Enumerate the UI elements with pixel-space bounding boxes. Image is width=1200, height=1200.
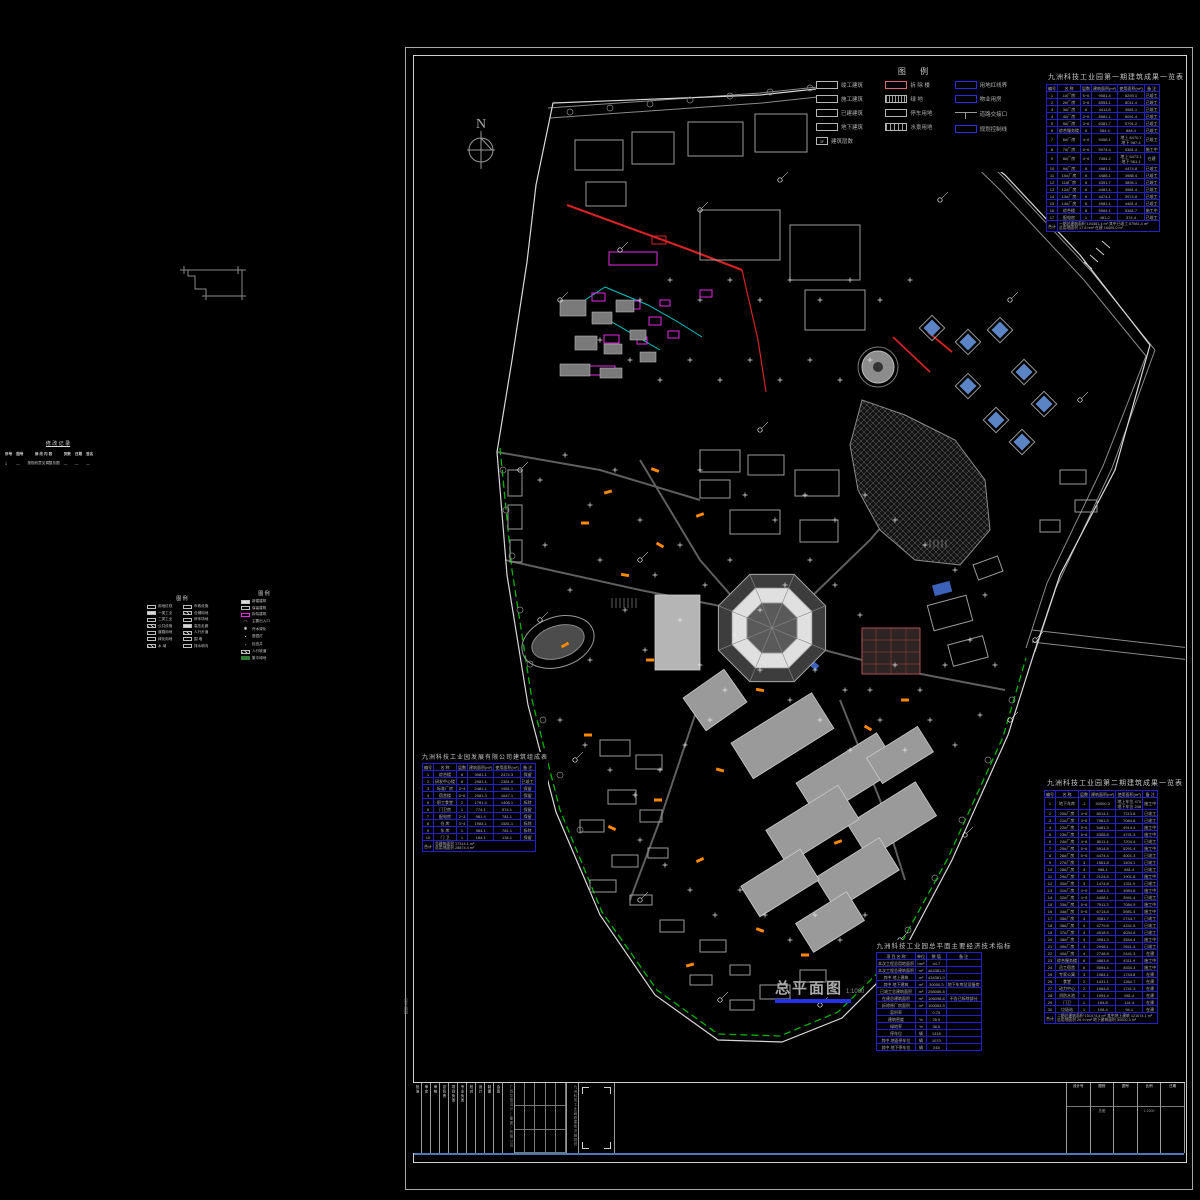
table-row [4,469,94,471]
table-cell: 已竣工 [1143,943,1158,950]
table-cell [946,974,981,981]
column-header: 建筑面积(m²) [468,764,494,771]
table-cell: 施工中 [1143,873,1158,880]
table-cell: 27 [1045,985,1056,992]
table-cell: 2~3 [457,813,468,820]
table-cell: 5974.4 [1092,146,1118,153]
table-row: 2139#厂房42948.12611.4已竣工 [1045,943,1158,950]
table-cell: 574.1 [494,806,520,813]
swatch-floor-count: 3F [816,137,828,145]
table-cell: 已竣工 [1143,915,1158,922]
table-cell: 7911.3 [1090,901,1116,908]
table-cell: 248 [927,1044,947,1051]
table-cell [26,469,60,471]
table-cell: m² [916,974,927,981]
table-cell: 1984.1 [468,820,494,827]
legend-label: 道路用地 [158,630,181,635]
table-cell: 4241.5 [1116,922,1143,929]
table-cell: 17 [1047,214,1058,221]
table-cell: 1 [1079,1006,1090,1013]
table-cell: 在建 [1143,985,1158,992]
table-cell: 1984.8 [1090,985,1116,992]
legend-label: 人行坡道 [252,649,266,654]
table-cell: 3974.8 [1118,193,1144,200]
table-cell: 已竣工 [1144,172,1159,179]
table-cell: 1094.4 [1090,992,1116,999]
phase2-table-grid: 编号名 称层数建筑面积(m²)使用面积(m²)备 注1地下车库-130000.3… [1044,790,1186,1024]
legend-swatch [183,618,192,622]
table-cell: 已竣工 [1143,810,1158,817]
table-row: 98#厂房4~67454.2地上 6473.1 地下 981.1在建 [1047,153,1160,165]
table-cell: 在建 [1143,978,1158,985]
table-row: 绿地率%38.5 [877,1023,982,1030]
table-cell: 7981.9 [1090,817,1116,824]
legend-swatch [241,600,250,604]
table-cell: 5~6 [1079,845,1090,852]
column-header: 名 称 [1056,791,1079,798]
table-row: 422#厂房5~65481.34914.4施工中 [1045,824,1158,831]
table-row: 在建总建筑面积m²106098.8不含已拆除部分 [877,995,982,1002]
table-row: 27动力中心21984.81741.3在建 [1045,985,1158,992]
table-row: 1514#厂房64981.14481.4已竣工 [1047,200,1160,207]
table-cell: 14 [1045,894,1056,901]
titleblock: 批准审定审核总负责项目负责专业负责校对设计制图会签 广西华蓝设计(集团)有限公司… [413,1082,1185,1153]
table-row: 停车位辆1318 [877,1030,982,1037]
table-row: 容积率0.79 [877,1009,982,1016]
column-header: 备 注 [1144,85,1159,92]
table-row: 1312#厂房64481.13981.4已竣工 [1047,186,1160,193]
table-cell: 33#厂房 [1056,901,1079,908]
column-header: 项 目 名 称 [877,953,916,960]
table-cell: 已竣工 [1144,120,1159,127]
table-cell: 其中 地下停车位 [877,1044,916,1051]
titleblock-label: 会签 [494,1083,503,1153]
table-cell: 7084.8 [1116,817,1143,824]
table-row: 1331#厂房4~54481.33984.8施工中 [1045,887,1158,894]
titleblock-field: 图别总图 [1091,1083,1115,1153]
table-cell: 保留 [520,771,535,778]
table-cell: 38#厂房 [1056,936,1079,943]
table-cell: 4~5 [1079,894,1090,901]
table-cell: 1404.1 [1116,859,1143,866]
table-cell: 4488.1 [1092,172,1118,179]
table-cell: 100063.9 [927,1002,947,1009]
table: 编号名 称层数建筑面积(m²)使用面积(m²)备 注11#厂房5~69081.4… [1046,84,1160,232]
table-cell: 保留 [520,785,535,792]
table-cell: 23 [1045,957,1056,964]
table-cell: 774.1 [468,806,494,813]
table-cell: 4914.4 [1116,824,1143,831]
table-cell: 地下车库及设备房 [946,981,981,988]
table-cell: 3 [1045,817,1056,824]
main-legend-title: 图 例 [816,66,1016,77]
table-cell: 已竣工 [1144,106,1159,113]
table-cell: 3#厂房 [1058,106,1081,113]
table-cell: 29 [1045,999,1056,1006]
table-cell: 3981.3 [1090,936,1116,943]
legend-swatch [147,618,156,622]
table-footer: 合计总建筑面积 17314.1 m² 总用地面积 28874.4 m² [423,841,536,852]
table-cell: 宿舍楼 [434,792,457,799]
table-cell: 6 [1081,179,1092,186]
titleblock-label: 审核 [431,1083,440,1153]
phase1-table: 九洲科技工业园第一期建筑成果一览表 编号名 称层数建筑面积(m²)使用面积(m²… [1046,72,1186,232]
table-cell: 5~6 [1079,908,1090,915]
table-cell: 9 [1045,859,1056,866]
table-cell: 26#厂房 [1056,852,1079,859]
swatch-green-space [885,95,907,103]
table-cell: 施工中 [1143,936,1158,943]
table-cell: 15 [1047,200,1058,207]
legend-swatch: ◠ [241,619,250,625]
table-cell: 25#厂房 [1056,845,1079,852]
table-cell: 1#厂房 [1058,92,1081,99]
swatch-control-line [955,125,977,133]
table-cell [946,1044,981,1051]
legend-label: 一类工业 [158,611,181,616]
table-cell: 981.4 [468,813,494,820]
table-cell: 已竣工 [1143,852,1158,859]
table: 编号名 称层数建筑面积(m²)使用面积(m²)备 注1综合楼63081.1247… [422,763,536,852]
table-cell [4,469,13,471]
table-cell: 12 [1047,179,1058,186]
table-cell: m² [916,1002,927,1009]
table-cell: 4981.1 [1092,165,1118,172]
table-cell: 4791.3 [1116,831,1143,838]
table-cell: 施工中 [1143,845,1158,852]
table-cell: 7 [1047,134,1058,146]
table-cell: 门卫 [1056,999,1079,1006]
table-row: 1230#厂房31474.81311.9已竣工 [1045,880,1158,887]
table-cell: 4481.3 [1090,887,1116,894]
table-cell: 15 [1045,901,1056,908]
table-row: 44#厂房3~68981.18091.4已竣工 [1047,113,1160,120]
table-cell: 3984.8 [1116,887,1143,894]
titleblock-company: 广西华蓝设计(集团)有限公司 [503,1083,515,1153]
titleblock-label: 总负责 [440,1083,449,1153]
legend-item: 用地红线市政设施 [147,604,217,609]
table-cell: 1741.3 [1116,985,1143,992]
table-cell: 3081.1 [468,771,494,778]
table-cell: 25.9 [927,1016,947,1023]
table-cell: 35#厂房 [1056,915,1079,922]
table-row: 1211#厂房64391.73894.1已竣工 [1047,179,1160,186]
table-cell: 8 [457,778,468,785]
column-header: 日期 [74,451,83,458]
column-header: 备 注 [520,764,535,771]
table-cell: 1318 [927,1030,947,1037]
table-cell: 1984.1 [1090,971,1116,978]
table-cell: 5~6 [1079,824,1090,831]
table-cell: 0.79 [927,1009,947,1016]
table-cell: % [916,1016,927,1023]
table-cell: 1 [1079,992,1090,999]
table-cell: 37#厂房 [1056,929,1079,936]
table-row: 本次工程总用地面积hm²44.7 [877,960,982,967]
table-cell: 已竣工 [1143,817,1158,824]
table-cell: 已竣工 [1144,200,1159,207]
legend-item: 拆除建筑 [241,612,287,617]
table-cell: 3 [1047,106,1058,113]
table-cell [63,469,72,471]
legend-swatch: • [241,634,250,640]
table-cell: 3081.7 [1090,915,1116,922]
table-cell: 5~6 [1081,146,1092,153]
table-cell: 2#厂房 [1058,99,1081,106]
table-cell: 24 [1045,964,1056,971]
table-cell: 29#厂房 [1056,873,1079,880]
table-cell: 9458.1 [1092,134,1118,146]
indicators-table-title: 九洲科技工业园总平面主要经济技术指标 [876,940,1012,950]
table-cell: 4 [1079,929,1090,936]
table-row: 拆除原厂房面积m²100063.9 [877,1002,982,1009]
table-cell: 7213.8 [1116,810,1143,817]
table-cell: 施工中 [1144,207,1159,214]
table-cell: 已竣工 [1143,859,1158,866]
table-cell: 拆除 [520,799,535,806]
table-row: 523#厂房5~65308.84791.3施工中 [1045,831,1158,838]
table-cell: 4034.8 [1116,929,1143,936]
legend-label: 主要出入口 [252,619,270,624]
table-cell: 已竣工 [1144,127,1159,134]
table-cell: 综合楼 [434,771,457,778]
table-cell: 已竣工 [1143,922,1158,929]
titleblock-label: 校对 [467,1083,476,1153]
table-cell: 20 [1045,936,1056,943]
table-cell: 建筑密度 [877,1016,916,1023]
table-row: 2研发中心楼82981.12381.9已竣工 [423,778,536,785]
table-cell: 1 [1081,214,1092,221]
table-cell: 1474.8 [1090,880,1116,887]
legend-item: ◠主要出入口 [241,619,287,625]
legend-label: 围 墙 [194,637,217,642]
table-row: 其中 地上建筑m²434381.0 [877,974,982,981]
land-use-legend-title: 图 例 [147,595,217,602]
table-cell [916,1009,927,1016]
column-header: 层数 [457,764,468,771]
table-cell: 8011.4 [1118,99,1144,106]
table-cell: 32#厂房 [1056,894,1079,901]
titleblock-field: 日期 [1161,1083,1185,1153]
table-cell: 8981.1 [1092,113,1118,120]
table-row: 7配电房2~3981.4781.1保留 [423,813,536,820]
table-cell: 动力中心 [1056,985,1079,992]
table-row: 2240#厂房42748.82441.3在建 [1045,950,1158,957]
table-cell: 3 [1079,866,1090,873]
land-use-legend: 图 例 用地红线市政设施一类工业仓储用地二类工业停车场地公共设施高压走廊道路用地… [147,595,217,650]
table-cell: 4474.1 [1092,193,1118,200]
table-cell: 2081.3 [468,792,494,799]
titleblock-stamp-box [579,1083,615,1153]
table-row: 1432#厂房4~54408.13941.4已竣工 [1045,894,1158,901]
table-cell: 5~6 [1081,92,1092,99]
table-cell: 3941.4 [1116,894,1143,901]
svg-text:N: N [476,117,486,132]
column-header: 数 值 [927,953,947,960]
table-cell: 其中 地面停车位 [877,1037,916,1044]
table-cell: 5~6 [1079,852,1090,859]
table-cell: 3981.4 [1118,186,1144,193]
swatch-existing-building [816,109,838,117]
table-cell: 门 卫 [434,834,457,841]
phase1-table-title: 九洲科技工业园第一期建筑成果一览表 [1046,72,1186,82]
table-cell: 施工中 [1143,887,1158,894]
table-cell: — [74,460,83,467]
legend-swatch [147,637,156,641]
table-cell: 4391.7 [1092,179,1118,186]
column-header: 建筑面积(m²) [1092,85,1118,92]
table-cell: 1 [423,771,434,778]
table-cell: 1581.1 [494,820,520,827]
table-cell: 2948.1 [1090,943,1116,950]
table-cell: 4001.3 [1116,852,1143,859]
table-cell: 1 [1045,798,1056,810]
table-cell: 2611.4 [1116,943,1143,950]
table-row: 1地下车库-130000.3地上车位 470 地下车位 248施工中 [1045,798,1158,810]
titleblock-blue-rule [414,1153,1184,1155]
table-cell: 4#厂房 [1058,113,1081,120]
legend-label: 停车场地 [194,617,217,622]
table-cell: 16 [1045,908,1056,915]
table-cell: 在建 [1143,999,1158,1006]
table-cell: 职工食堂 [434,799,457,806]
table-cell: 21#厂房 [1056,817,1079,824]
table-cell: 综合服务楼 [1056,957,1079,964]
table-cell: 食堂 [1056,978,1079,985]
table-cell: 22#厂房 [1056,824,1079,831]
table-row: 建筑密度%25.9 [877,1016,982,1023]
table-cell: 374.4 [1118,214,1144,221]
table-cell: 仓 库 [434,820,457,827]
legend-swatch [241,613,250,617]
legend-label: 用地红线 [158,604,181,609]
table-row: 29门卫1184.8141.4在建 [1045,999,1158,1006]
table-cell: 6#厂房 [1058,134,1081,146]
table-cell: 4881.8 [1090,957,1116,964]
table-cell [946,1009,981,1016]
titleblock-sign-labels: 批准审定审核总负责项目负责专业负责校对设计制图会签 [413,1083,503,1153]
table-cell: 27#厂房 [1056,859,1079,866]
table-cell: 5094.4 [1090,964,1116,971]
legend-item: 道路用地人行步道 [147,630,217,635]
table-row: 其中 地下停车位辆248 [877,1044,982,1051]
legend-swatch [183,644,192,648]
legend-item: •庭园灯 [241,634,287,640]
column-header: 单位 [916,953,927,960]
table-cell: 781.1 [494,827,520,834]
table-cell [946,1002,981,1009]
table-cell: 已竣工 [520,778,535,785]
legend-swatch [241,656,250,660]
table-cell: 8091.4 [1118,113,1144,120]
legend-swatch [241,606,250,610]
table-cell: m² [916,981,927,988]
table-cell: 4 [1079,943,1090,950]
table-cell: 已竣工 [1143,838,1158,845]
column-header: 建筑面积(m²) [1090,791,1116,798]
table-row: 30垃圾站1108.494.1在建 [1045,1006,1158,1013]
table-cell: — [15,460,24,467]
legend-label: 乔木绿化 [252,627,266,632]
land-use-legend-grid: 用地红线市政设施一类工业仓储用地二类工业停车场地公共设施高压走廊道路用地人行步道… [147,604,217,649]
column-header: 层数 [1081,85,1092,92]
column-header: 名 称 [1058,85,1081,92]
table-row: 1413#厂房64474.13974.8已竣工 [1047,193,1160,200]
legend-item: ▫检查井 [241,642,287,648]
swatch-property-room [955,95,977,103]
table-cell: 13#厂房 [1058,193,1081,200]
table-cell: 5#厂房 [1058,120,1081,127]
table-cell: 14 [1047,193,1058,200]
table-cell: 16 [1047,207,1058,214]
table-cell: m² [916,995,927,1002]
table-cell: 综合楼 [1058,207,1081,214]
table-cell: 10 [423,834,434,841]
table-cell: 已竣工 [1143,866,1158,873]
table-cell: 14#厂房 [1058,200,1081,207]
table-cell: 4518.9 [1090,929,1116,936]
table-cell: 988.1 [1090,866,1116,873]
phase1-table-grid: 编号名 称层数建筑面积(m²)使用面积(m²)备 注11#厂房5~69081.4… [1046,84,1186,232]
table-cell: 在建 [1143,971,1158,978]
table-cell: 5 [423,799,434,806]
table-cell: 5791.2 [1118,120,1144,127]
table-cell: 辆 [916,1037,927,1044]
table-cell [946,1030,981,1037]
table-cell: 在建 [1144,153,1159,165]
table-cell: -1 [1079,798,1090,810]
table-cell: 7084.9 [1116,901,1143,908]
table-row: 1836#厂房44779.84241.5已竣工 [1045,922,1158,929]
table-cell: 已竣工 [1144,99,1159,106]
table-row: 624#厂房4~68011.47204.4已竣工 [1045,838,1158,845]
table-cell: 9081.4 [1092,92,1118,99]
table-cell: 1070 [927,1037,947,1044]
table-cell: 881.4 [1116,866,1143,873]
table-cell: 5381.7 [1118,207,1144,214]
table-cell: 4~6 [1079,817,1090,824]
table-cell: 10#厂房 [1058,172,1081,179]
table-cell: 1 [457,834,468,841]
table-cell: 6381.7 [1092,120,1118,127]
legend-col-3: 用地红线界 物业用房 道路交接口 规划控制线 [955,81,1016,145]
table-row: 8仓 库3~41984.11581.1拆除 [423,820,536,827]
table-cell: 4311.9 [1116,957,1143,964]
north-arrow-icon: N [458,114,504,172]
table-cell: 6714.8 [1090,908,1116,915]
swatch-underground-building [816,123,838,131]
table-cell: 已竣工 [1144,92,1159,99]
swatch-under-construction [816,95,838,103]
table-cell: 31#厂房 [1056,887,1079,894]
table-cell: 12#厂房 [1058,186,1081,193]
table-row: 1028#厂房3988.1881.4已竣工 [1045,866,1158,873]
table-cell: 28 [1045,992,1056,999]
table-cell: 6 [1081,193,1092,200]
table-cell: 11 [1045,873,1056,880]
table-cell: 2981.1 [468,778,494,785]
table-cell: 25 [1045,971,1056,978]
table-cell: 配电房 [434,813,457,820]
table-cell: 3~4 [457,820,468,827]
table-cell: 在建总建筑面积 [877,995,916,1002]
table-row: 1129#厂房32124.51901.8施工中 [1045,873,1158,880]
table-cell: 28#厂房 [1056,866,1079,873]
table-cell: 施工中 [1143,957,1158,964]
titleblock-label: 审定 [422,1083,431,1153]
table-cell: 停车位 [877,1030,916,1037]
table: 序号图号修 改 内 容页数日期签名1—按规划意见调整总图——— [2,449,96,473]
